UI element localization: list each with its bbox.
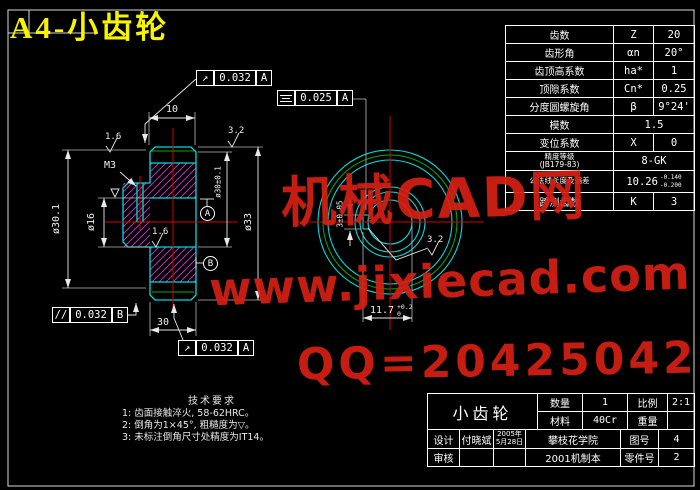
gdt-datum-ref: A	[238, 340, 254, 356]
param-symbol: X	[614, 134, 654, 152]
qty-label: 数量	[538, 394, 583, 412]
dim-outer-dia: ø33	[244, 213, 254, 231]
scale-label: 比例	[628, 394, 668, 412]
gdt-parallelism-frame: // 0.032 B	[52, 307, 128, 323]
watermark-qq: QQ=20425042	[297, 333, 698, 391]
gdt-value: 0.032	[196, 340, 238, 356]
param-value: 20°	[654, 44, 695, 62]
dim-bore-dia: ø16	[87, 213, 97, 231]
dim-thread-m3: M3	[104, 161, 116, 171]
gdt-value: 0.032	[214, 70, 256, 86]
gdt-symmetry-frame: 0.025 A	[277, 90, 353, 106]
roughness-value-16-bore: 1.6	[152, 228, 168, 237]
param-label: 齿顶高系数	[506, 62, 614, 80]
check-label: 审核	[428, 449, 460, 467]
param-symbol: αn	[614, 44, 654, 62]
weight-value	[668, 412, 695, 430]
param-value: 1.5	[614, 116, 695, 134]
part-no-value: 2	[659, 449, 695, 467]
param-value: 20	[654, 26, 695, 44]
tech-req-line: 1: 齿面接触淬火, 58-62HRC。	[122, 408, 302, 420]
designer-name: 付晓斌	[460, 430, 494, 449]
drawing-title: A4-小齿轮	[10, 12, 169, 43]
checker-name	[460, 449, 494, 467]
material-label: 材料	[538, 412, 583, 430]
class-name: 2001机制本	[526, 449, 621, 467]
param-symbol: Z	[614, 26, 654, 44]
gdt-value: 0.025	[295, 90, 337, 106]
param-value: 3	[654, 193, 695, 211]
param-label: 分度圆螺旋角	[506, 98, 614, 116]
part-name: 小齿轮	[428, 394, 538, 430]
param-value: 0.25	[654, 80, 695, 98]
tech-req-line: 3: 未标注倒角尺寸处精度为IT14。	[122, 432, 302, 444]
watermark-site-name: 机械CAD网	[280, 150, 588, 238]
dim-gear-width: 30	[157, 318, 169, 328]
param-label: 模数	[506, 116, 614, 134]
param-symbol: Cn*	[614, 80, 654, 98]
design-date: 2005年 5月28日	[494, 430, 526, 449]
gdt-datum-ref: A	[337, 90, 353, 106]
gdt-value: 0.032	[70, 307, 112, 323]
dim-shoulder-dia: ø30.1	[52, 204, 62, 234]
cad-drawing-sheet: A4-小齿轮 10 30 M3 ø30.1 ø16 ø30±0.1 ø33 3±…	[0, 0, 700, 490]
weight-label: 重量	[628, 412, 668, 430]
gdt-runout-top-frame: ↗ 0.032 A	[196, 70, 272, 86]
datum-a-bubble: A	[200, 206, 215, 221]
param-label: 齿数	[506, 26, 614, 44]
gdt-datum-ref: B	[112, 307, 128, 323]
tech-req-heading: 技术要求	[122, 396, 302, 408]
roughness-value-32-keyway: 3.2	[427, 236, 443, 245]
circular-runout-icon: ↗	[196, 70, 214, 86]
part-no-label: 零件号	[621, 449, 659, 467]
param-value: 0	[654, 134, 695, 152]
gdt-runout-bottom-frame: ↗ 0.032 A	[178, 340, 254, 356]
param-label: 变位系数	[506, 134, 614, 152]
param-symbol: β	[614, 98, 654, 116]
circular-runout-icon: ↗	[178, 340, 196, 356]
param-label: 齿形角	[506, 44, 614, 62]
dim-hub-dia: ø30±0.1	[214, 166, 222, 198]
scale-value: 2:1	[668, 394, 695, 412]
title-block-bottom: 设计 付晓斌 2005年 5月28日 攀枝花学院 图号 4 审核 2001机制本…	[427, 429, 695, 467]
param-value: 1	[654, 62, 695, 80]
technical-requirements: 技术要求 1: 齿面接触淬火, 58-62HRC。 2: 倒角为1×45°, 粗…	[122, 396, 302, 444]
drawing-no-label: 图号	[621, 430, 659, 449]
param-label: 顶隙系数	[506, 80, 614, 98]
title-block-top: 小齿轮 数量 1 比例 2:1 材料 40Cr 重量	[427, 393, 695, 430]
drawing-no-value: 4	[659, 430, 695, 449]
param-value: 10.26 -0.140 -0.200	[614, 171, 695, 193]
parallelism-icon: //	[52, 307, 70, 323]
roughness-value-16-top: 1.6	[105, 133, 121, 142]
symmetry-icon	[280, 95, 292, 102]
design-label: 设计	[428, 430, 460, 449]
material-value: 40Cr	[583, 412, 628, 430]
school-name: 攀枝花学院	[526, 430, 621, 449]
tech-req-line: 2: 倒角为1×45°, 粗糙度为▽。	[122, 420, 302, 432]
qty-value: 1	[583, 394, 628, 412]
param-symbol: K	[614, 193, 654, 211]
dim-hub-width: 10	[166, 105, 178, 115]
gdt-datum-ref: A	[256, 70, 272, 86]
param-symbol: ha*	[614, 62, 654, 80]
roughness-value-32-top: 3.2	[228, 127, 244, 136]
check-date	[494, 449, 526, 467]
param-value: 8-GK	[614, 152, 695, 171]
param-value: 9°24'	[654, 98, 695, 116]
